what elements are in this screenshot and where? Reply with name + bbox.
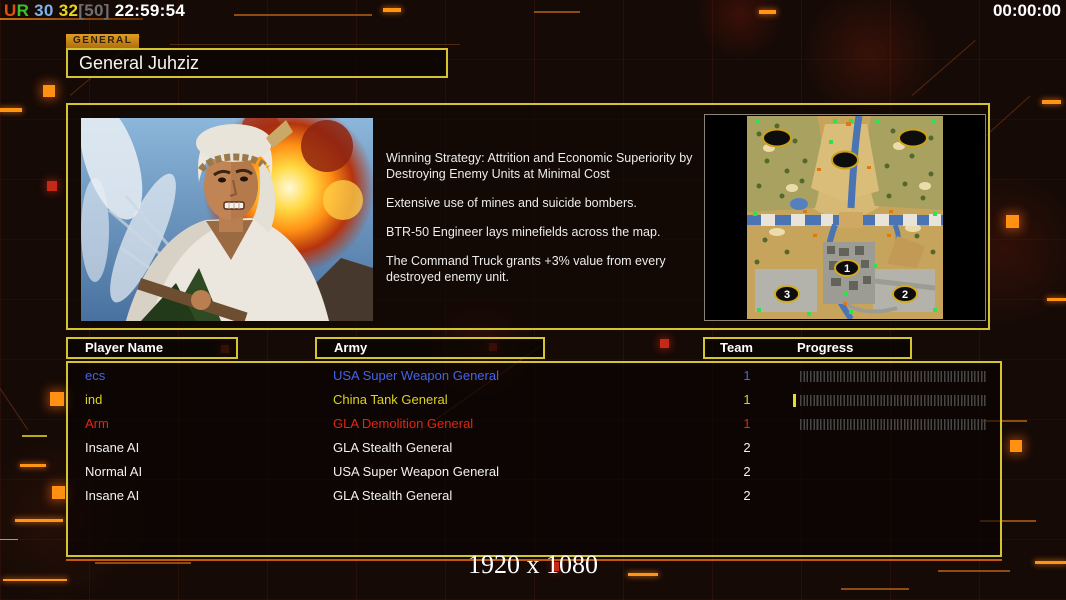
- player-team: 1: [736, 412, 758, 436]
- progress-bar: [800, 395, 986, 406]
- header-army: Army: [315, 337, 545, 359]
- header-progress: Progress: [797, 339, 853, 357]
- decor-line: [0, 539, 18, 540]
- player-row: ind China Tank General 1: [68, 388, 1000, 412]
- decor-line: [170, 44, 460, 45]
- general-info-panel: Winning Strategy: Attrition and Economic…: [66, 103, 990, 330]
- status-seg-u: U: [4, 1, 17, 20]
- progress-bar: [800, 371, 986, 382]
- player-name: Arm: [85, 412, 109, 436]
- progress-bar: [800, 419, 986, 430]
- header-player-name: Player Name: [66, 337, 238, 359]
- player-row: Insane AI GLA Stealth General 2: [68, 484, 1000, 508]
- decor-dash: [759, 10, 776, 14]
- player-team: 2: [736, 484, 758, 508]
- progress-tick: [793, 394, 796, 407]
- decor-line: [22, 435, 47, 437]
- general-tab-label: GENERAL: [66, 34, 139, 48]
- general-name-box: General Juhziz: [66, 48, 448, 78]
- status-seg-r: R: [17, 1, 30, 20]
- match-timer: 00:00:00: [993, 1, 1061, 21]
- player-team: 2: [736, 436, 758, 460]
- player-team: 1: [736, 388, 758, 412]
- map-marker-2: 2: [902, 289, 908, 301]
- player-army: GLA Stealth General: [333, 484, 452, 508]
- player-army: USA Super Weapon General: [333, 460, 499, 484]
- decor-square-orange: [1006, 215, 1019, 228]
- player-army: USA Super Weapon General: [333, 364, 499, 388]
- player-name: Insane AI: [85, 436, 139, 460]
- status-readout: UR 30 32[50] 22:59:54: [4, 1, 185, 21]
- strategy-paragraph: BTR-50 Engineer lays minefields across t…: [386, 224, 708, 240]
- player-team: 1: [736, 364, 758, 388]
- general-name: General Juhziz: [79, 53, 199, 73]
- portrait-illustration: [81, 118, 373, 321]
- strategy-text: Winning Strategy: Attrition and Economic…: [386, 150, 708, 298]
- strategy-paragraph: Winning Strategy: Attrition and Economic…: [386, 150, 708, 182]
- players-table: ecs USA Super Weapon General 1 ind China…: [66, 361, 1002, 557]
- decor-square-orange: [52, 486, 65, 499]
- decor-square-orange: [50, 392, 64, 406]
- player-name: Insane AI: [85, 484, 139, 508]
- map-marker-3: 3: [784, 289, 790, 301]
- decor-square-orange: [43, 85, 55, 97]
- map-marker-1: 1: [844, 263, 850, 275]
- status-seg-clock: 22:59:54: [110, 1, 185, 20]
- decor-line: [234, 14, 372, 16]
- player-row: ecs USA Super Weapon General 1: [68, 364, 1000, 388]
- decor-dash: [383, 8, 401, 12]
- player-row: Insane AI GLA Stealth General 2: [68, 436, 1000, 460]
- strategy-paragraph: Extensive use of mines and suicide bombe…: [386, 195, 708, 211]
- decor-diagonal: [0, 388, 28, 430]
- player-name: ind: [85, 388, 102, 412]
- player-name: ecs: [85, 364, 105, 388]
- player-army: GLA Demolition General: [333, 412, 473, 436]
- decor-dash: [0, 108, 22, 112]
- player-army: China Tank General: [333, 388, 448, 412]
- decor-square-orange: [1010, 440, 1022, 452]
- resolution-label: 1920 x 1080: [0, 550, 1066, 580]
- general-portrait: [81, 118, 373, 321]
- decor-square-red: [660, 339, 669, 348]
- player-army: GLA Stealth General: [333, 436, 452, 460]
- player-name: Normal AI: [85, 460, 142, 484]
- decor-dash: [15, 519, 63, 522]
- map-preview: 1 2 3: [747, 116, 943, 319]
- decor-dash: [20, 464, 46, 467]
- decor-square-red: [47, 181, 57, 191]
- header-team-progress: Team Progress: [703, 337, 912, 359]
- header-team: Team: [720, 339, 753, 357]
- status-seg-50: [50]: [78, 1, 109, 20]
- player-row: Normal AI USA Super Weapon General 2: [68, 460, 1000, 484]
- decor-diagonal: [912, 40, 976, 96]
- decor-dash: [1047, 298, 1066, 301]
- player-team: 2: [736, 460, 758, 484]
- status-seg-32: 32: [59, 1, 79, 20]
- player-row: Arm GLA Demolition General 1: [68, 412, 1000, 436]
- map-preview-frame: 1 2 3: [704, 114, 986, 321]
- status-seg-30: 30: [29, 1, 59, 20]
- decor-dash: [1042, 100, 1061, 104]
- decor-line: [841, 588, 909, 590]
- strategy-paragraph: The Command Truck grants +3% value from …: [386, 253, 708, 285]
- loading-screen: UR 30 32[50] 22:59:54 00:00:00 GENERAL G…: [0, 0, 1066, 600]
- decor-line: [534, 11, 580, 13]
